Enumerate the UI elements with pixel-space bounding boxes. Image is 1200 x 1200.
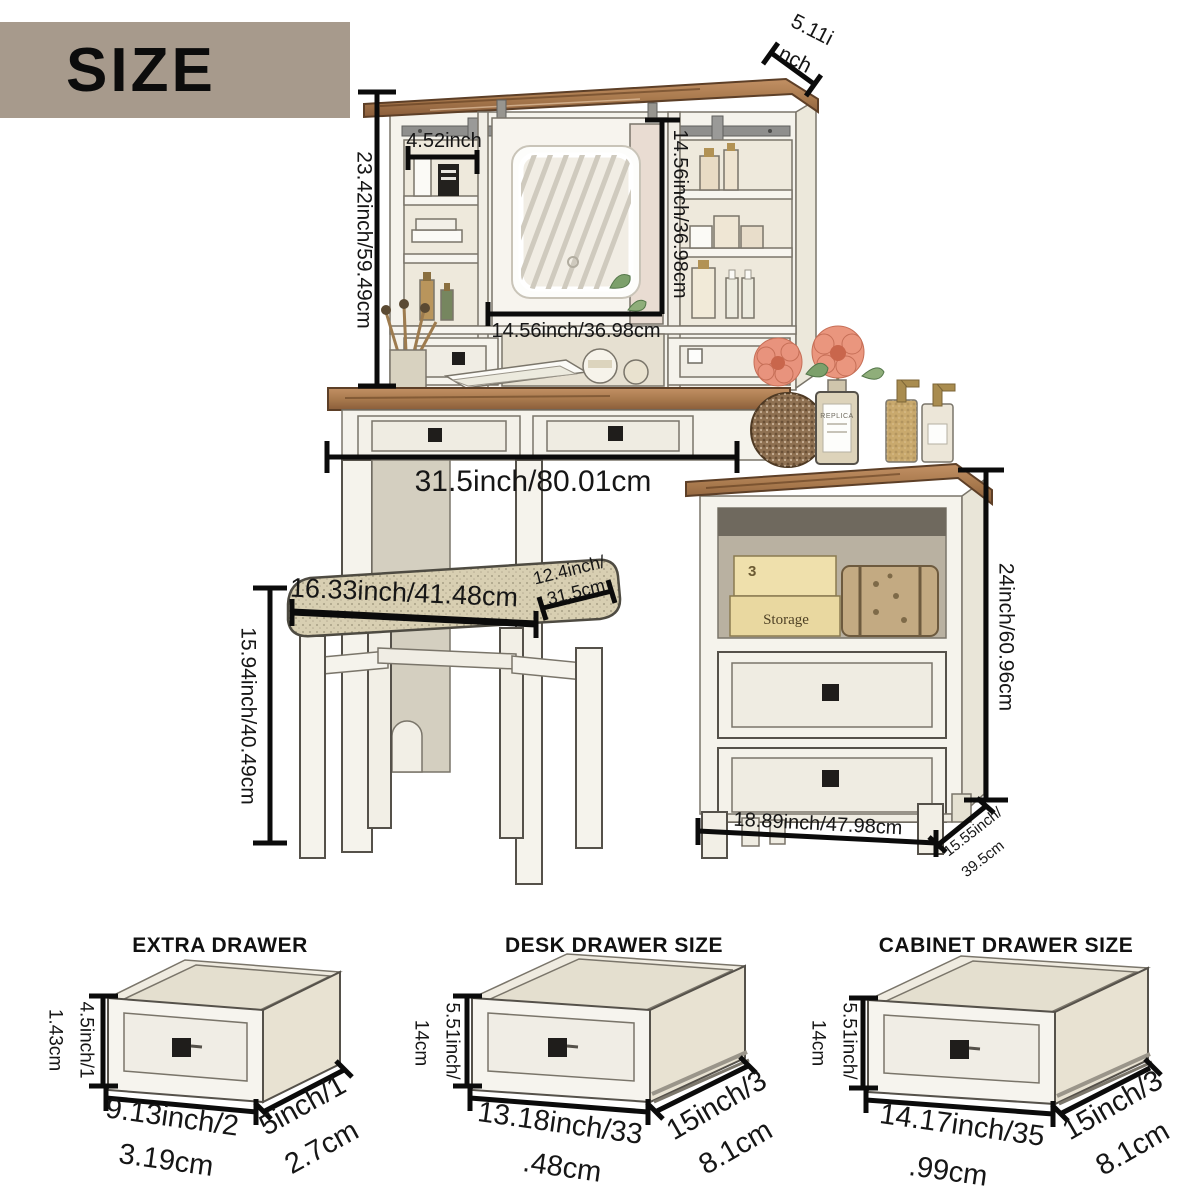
section-title-extra-drawer: EXTRA DRAWER [132, 934, 308, 958]
storage-boxes: 3 Storage [730, 556, 938, 636]
dim-cabinet-height: 24inch/60.96cm [996, 563, 1017, 711]
storage-box-number: 3 [748, 563, 756, 580]
cabinet-top-decor: REPLICA [751, 326, 955, 467]
desk-drawer-sketch [472, 954, 749, 1102]
cabinet-drawer-sketch [868, 956, 1152, 1104]
cabinet-drawer-height-1: 5.51inch/ [840, 1002, 859, 1079]
desk-drawer-height-1: 5.51inch/ [443, 1002, 462, 1079]
extra-drawer-height-2: 1.43cm [46, 1009, 65, 1071]
dim-stool-height: 15.94inch/40.49cm [238, 627, 259, 804]
desk-drawer-height-2: 14cm [412, 1020, 431, 1066]
hutch [364, 79, 818, 390]
sliding-mirror [480, 100, 668, 330]
extra-drawer-sketch [108, 960, 340, 1102]
section-title-cabinet-drawer: CABINET DRAWER SIZE [879, 934, 1134, 958]
perfume-label: REPLICA [820, 413, 853, 420]
section-title-desk-drawer: DESK DRAWER SIZE [505, 934, 723, 958]
dim-left-shelf-width: 4.52inch [406, 131, 482, 151]
cabinet: 3 Storage [686, 464, 992, 858]
dim-desk-width: 31.5inch/80.01cm [415, 467, 652, 497]
dim-hutch-height: 23.42inch/59.49cm [354, 151, 375, 328]
cabinet-drawer-height-2: 14cm [809, 1020, 828, 1066]
size-infographic: SIZE [0, 0, 1200, 1200]
storage-box-label: Storage [763, 612, 809, 628]
dim-mirror-width: 14.56inch/36.98cm [491, 321, 660, 341]
dim-mirror-height: 14.56inch/36.98cm [670, 129, 690, 298]
furniture-illustration: REPLICA 3 Storage [0, 0, 1200, 1200]
extra-drawer-height-1: 4.5inch/1 [77, 1001, 96, 1078]
